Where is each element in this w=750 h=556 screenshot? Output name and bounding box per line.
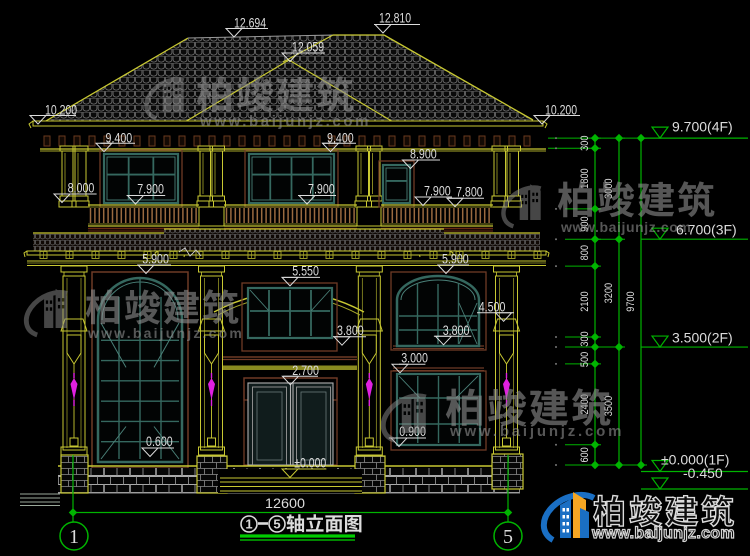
svg-text:7.900: 7.900 — [308, 182, 335, 197]
svg-text:0.600: 0.600 — [146, 434, 173, 449]
svg-text:-0.450: -0.450 — [683, 465, 723, 481]
svg-text:2100: 2100 — [579, 291, 591, 311]
svg-text:1: 1 — [69, 526, 79, 548]
svg-text:800: 800 — [579, 245, 591, 260]
svg-text:www.baijunjz.com: www.baijunjz.com — [560, 219, 691, 235]
svg-text:www.baijunjz.com: www.baijunjz.com — [591, 525, 735, 542]
svg-text:3.800: 3.800 — [337, 323, 364, 338]
svg-text:600: 600 — [579, 447, 591, 462]
svg-text:8.000: 8.000 — [68, 181, 95, 196]
svg-text:9.700(4F): 9.700(4F) — [672, 119, 733, 135]
svg-text:5: 5 — [273, 517, 280, 532]
svg-text:4.500: 4.500 — [479, 300, 506, 315]
svg-text:1: 1 — [245, 517, 252, 532]
svg-text:500: 500 — [579, 352, 591, 367]
svg-text:5: 5 — [503, 526, 513, 548]
svg-text:9700: 9700 — [625, 291, 637, 311]
svg-text:300: 300 — [579, 331, 591, 346]
svg-text:7.900: 7.900 — [424, 184, 451, 199]
svg-text:3.000: 3.000 — [401, 351, 428, 366]
svg-text:300: 300 — [579, 136, 591, 151]
svg-text:7.800: 7.800 — [456, 185, 483, 200]
svg-text:2.700: 2.700 — [292, 363, 319, 378]
svg-text:5.550: 5.550 — [292, 263, 319, 278]
svg-text:www.baijunjz.com: www.baijunjz.com — [87, 325, 244, 341]
svg-text:12.059: 12.059 — [292, 40, 324, 55]
svg-text:12600: 12600 — [265, 496, 305, 511]
svg-text:12.810: 12.810 — [379, 11, 411, 26]
svg-text:3.500(2F): 3.500(2F) — [672, 330, 733, 346]
svg-text:3.800: 3.800 — [443, 323, 470, 338]
svg-text:5.900: 5.900 — [442, 252, 469, 267]
svg-text:5.900: 5.900 — [142, 252, 169, 267]
svg-text:±0.000: ±0.000 — [294, 455, 326, 470]
svg-text:7.900: 7.900 — [137, 182, 164, 197]
svg-text:3200: 3200 — [603, 283, 615, 303]
svg-text:8.900: 8.900 — [410, 147, 437, 162]
svg-text:www.baijunjz.com: www.baijunjz.com — [449, 423, 624, 440]
svg-text:www.baijunjz.com: www.baijunjz.com — [199, 113, 371, 130]
